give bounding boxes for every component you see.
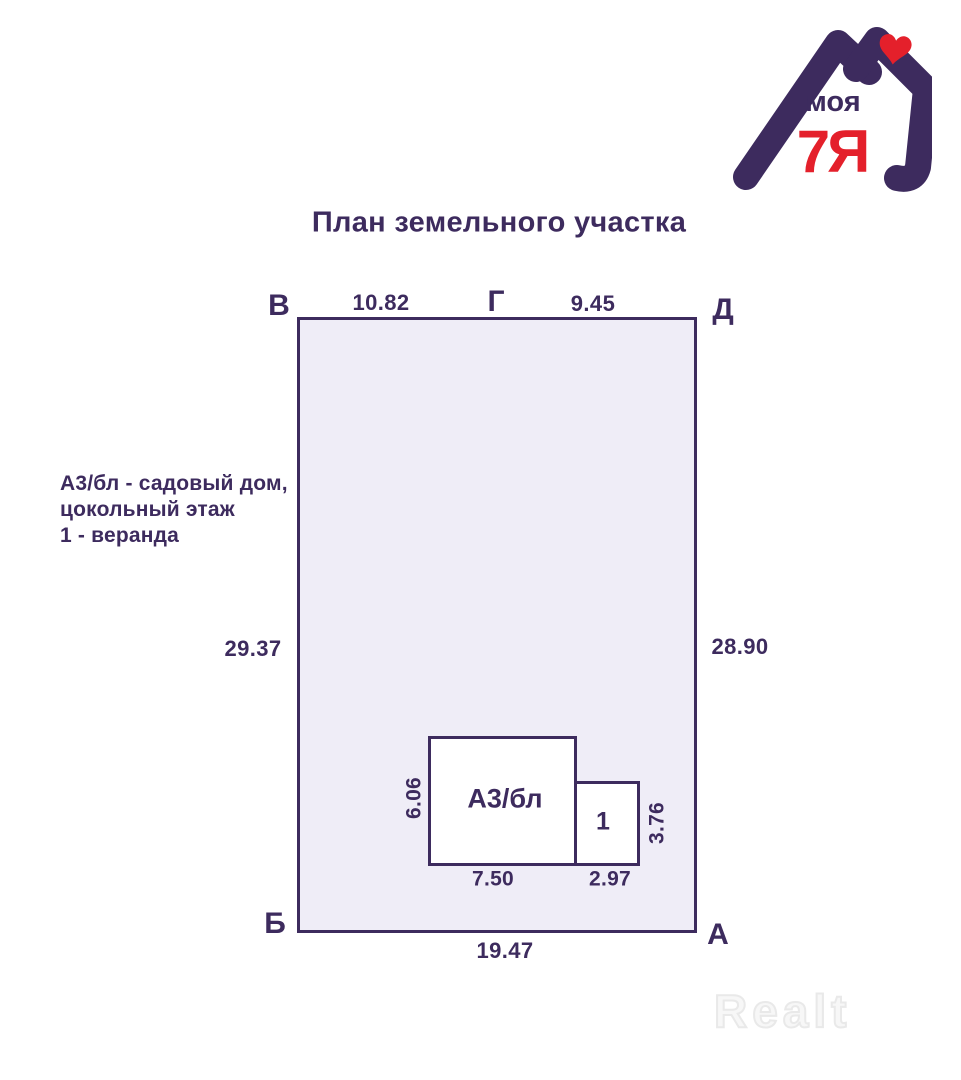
land-plan-page: моя 7Я План земельного участка А3/бл - с… xyxy=(0,0,961,1080)
house-height-dimension: 6.06 xyxy=(404,777,425,819)
veranda-width-dimension: 2.97 xyxy=(589,869,631,890)
moya-7ya-logo: моя 7Я xyxy=(722,15,932,205)
page-title: План земельного участка xyxy=(312,209,686,238)
dimension-right-side: 28.90 xyxy=(711,636,768,658)
corner-label-v: В xyxy=(268,291,290,321)
corner-label-d: Д xyxy=(712,295,733,325)
dimension-bottom: 19.47 xyxy=(476,940,533,962)
legend-line: 1 - веранда xyxy=(60,523,288,549)
house-label: А3/бл xyxy=(467,786,542,813)
veranda-height-dimension: 3.76 xyxy=(647,802,668,844)
veranda-label: 1 xyxy=(596,810,610,835)
corner-label-a: А xyxy=(707,920,729,950)
corner-label-g: Г xyxy=(487,287,504,317)
dimension-top-right: 9.45 xyxy=(571,293,615,315)
corner-label-b: Б xyxy=(264,909,286,939)
logo-word: моя xyxy=(805,86,860,118)
logo-brand: 7Я xyxy=(797,118,868,185)
legend-line: А3/бл - садовый дом, xyxy=(60,471,288,497)
dimension-left-side: 29.37 xyxy=(224,638,281,660)
realt-watermark: Realt xyxy=(714,988,851,1034)
dimension-top-left: 10.82 xyxy=(352,292,409,314)
house-width-dimension: 7.50 xyxy=(472,869,514,890)
legend-line: цокольный этаж xyxy=(60,497,288,523)
legend: А3/бл - садовый дом, цокольный этаж 1 - … xyxy=(60,471,288,549)
